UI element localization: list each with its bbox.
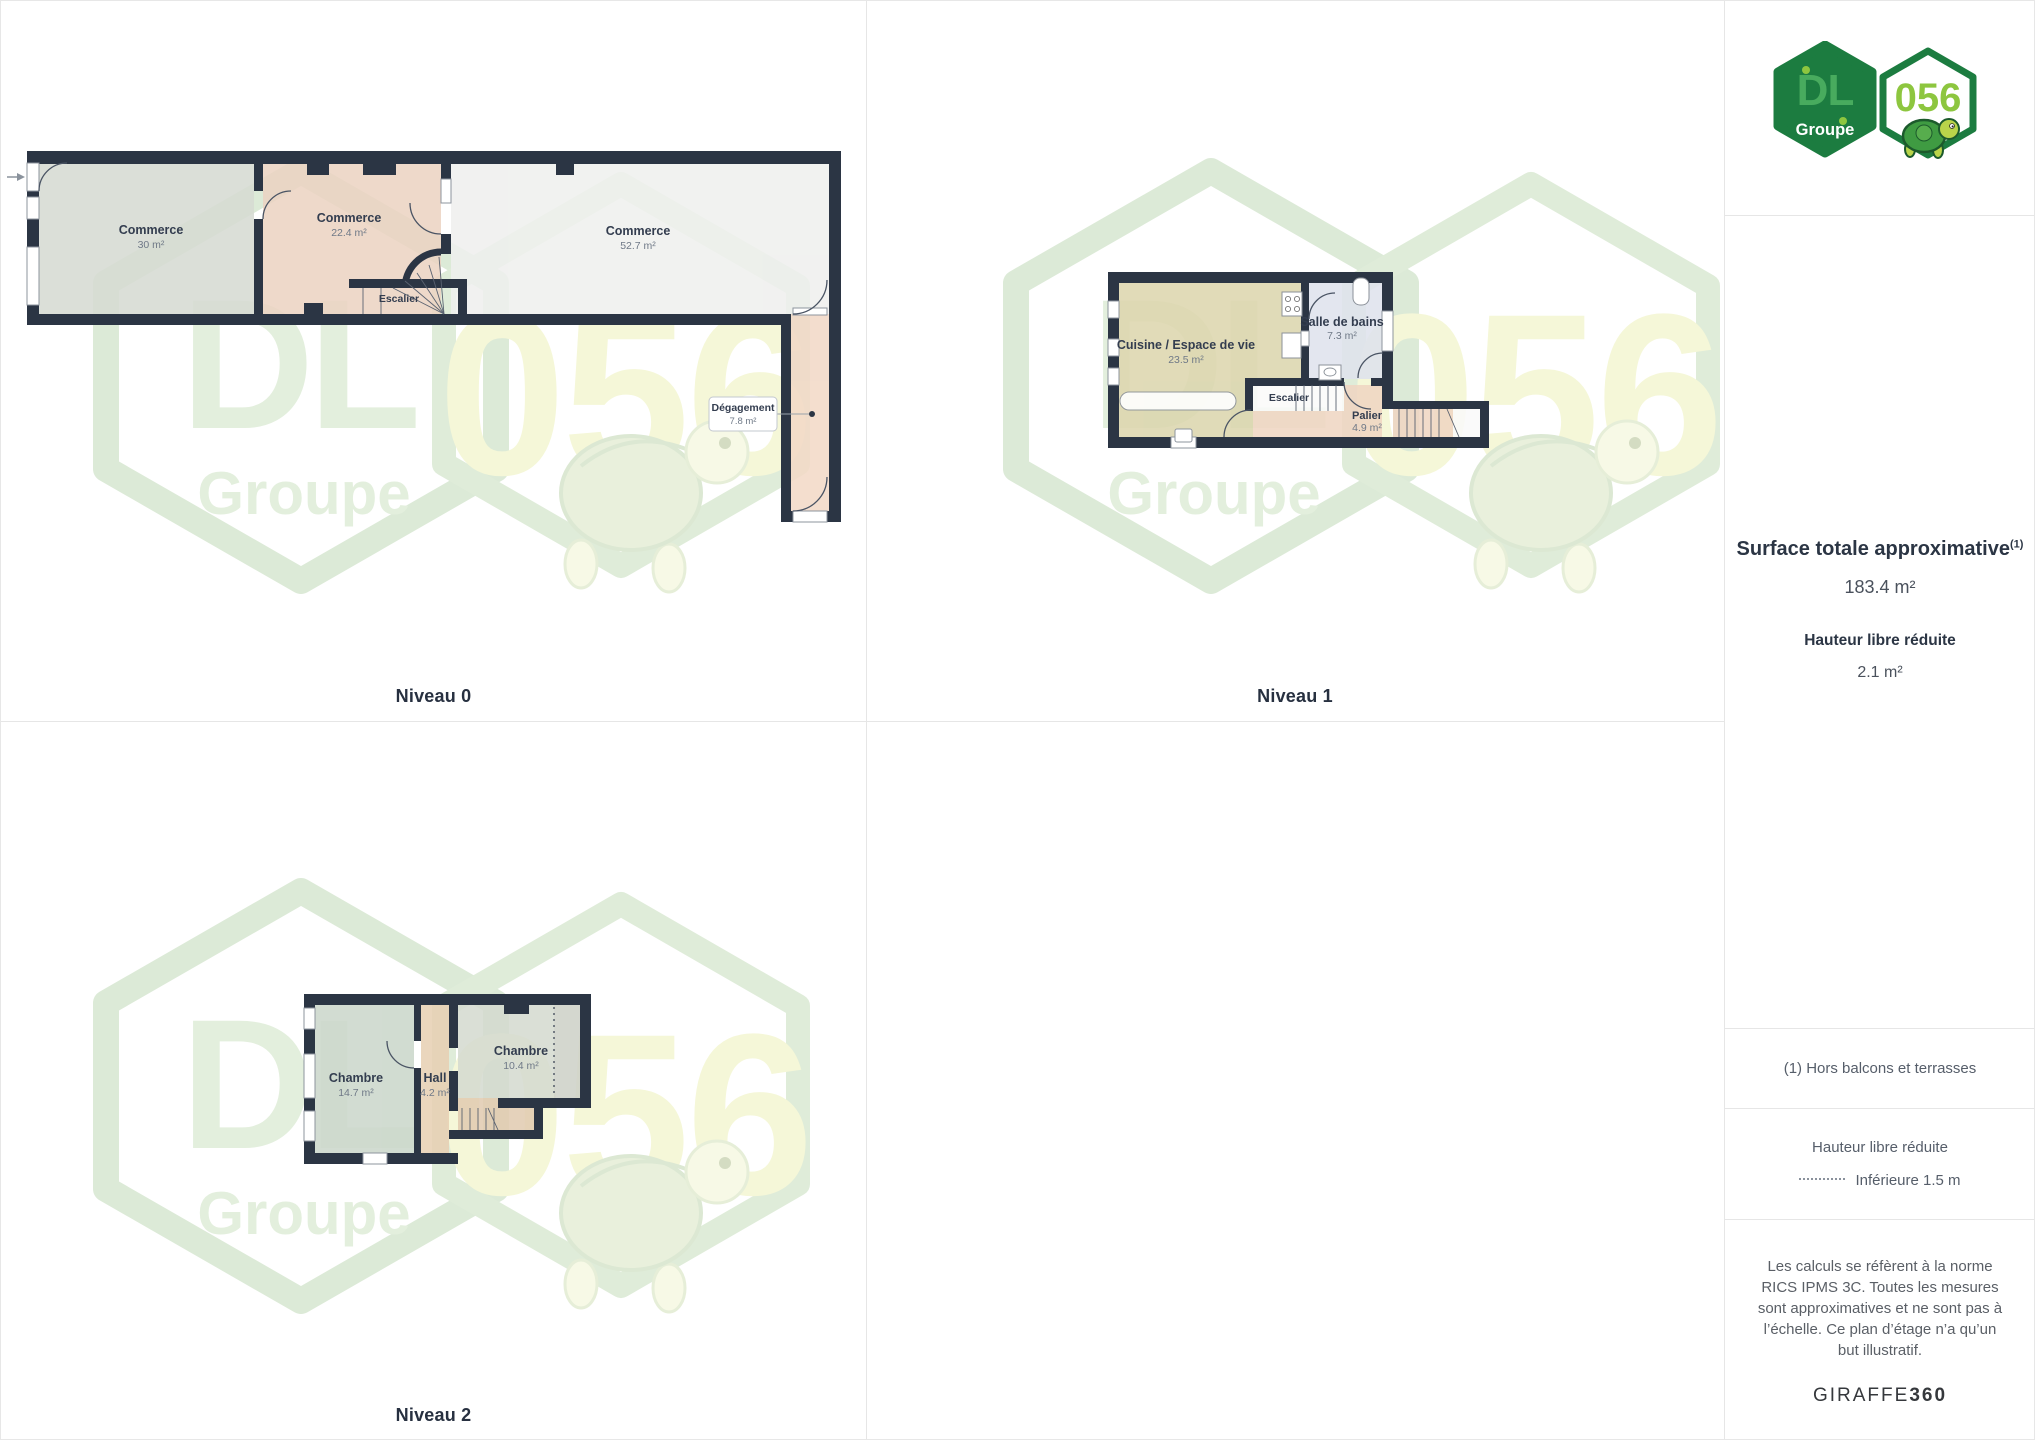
reduced-height-value: 2.1 m² bbox=[1725, 664, 2035, 682]
legend-title: Hauteur libre réduite bbox=[1725, 1139, 2035, 1156]
legend-item-label: Inférieure 1.5 m bbox=[1855, 1172, 1960, 1189]
room-label: Dégagement bbox=[711, 402, 775, 414]
room-label: Salle de bains bbox=[1300, 315, 1383, 329]
room-label: Escalier bbox=[379, 293, 419, 305]
disclaimer-section: Les calculs se réfèrent à la norme RICS … bbox=[1725, 1220, 2035, 1434]
kitchen-unit-icon bbox=[1282, 333, 1301, 358]
room-area: 4.2 m² bbox=[420, 1087, 450, 1099]
room-area: 10.4 m² bbox=[503, 1060, 539, 1072]
room-area: 23.5 m² bbox=[1168, 354, 1204, 366]
room-area: 52.7 m² bbox=[620, 240, 656, 252]
kitchen-counter bbox=[1120, 392, 1236, 410]
surface-total-value: 183.4 m² bbox=[1725, 577, 2035, 598]
room-area: 7.3 m² bbox=[1327, 330, 1357, 342]
surface-total-label: Surface totale approximative(1) bbox=[1725, 538, 2035, 561]
bathroom-sink-icon bbox=[1319, 365, 1341, 380]
giraffe360-brand: GIRAFFE360 bbox=[1725, 1385, 2035, 1407]
room-commerce-52 bbox=[451, 163, 830, 314]
surface-summary-section: Surface totale approximative(1) 183.4 m²… bbox=[1725, 216, 2035, 1029]
disclaimer-text: Les calculs se réfèrent à la norme RICS … bbox=[1754, 1256, 2006, 1361]
room-label: Chambre bbox=[329, 1071, 383, 1085]
agency-logo: DL Groupe 056 bbox=[1770, 41, 1990, 176]
room-label: Cuisine / Espace de vie bbox=[1117, 338, 1255, 352]
logo-turtle-icon bbox=[1903, 119, 1959, 158]
room-area: 14.7 m² bbox=[338, 1087, 374, 1099]
stove-icon bbox=[1282, 292, 1302, 316]
footnote-section: (1) Hors balcons et terrasses bbox=[1725, 1029, 2035, 1109]
room-label: Commerce bbox=[317, 211, 382, 225]
reduced-height-zone bbox=[554, 1005, 580, 1098]
room-label: Escalier bbox=[1269, 392, 1309, 404]
room-label: Commerce bbox=[119, 223, 184, 237]
logo-groupe-text: Groupe bbox=[1796, 121, 1855, 139]
room-label: Hall bbox=[424, 1071, 447, 1085]
logo-code-text: 056 bbox=[1895, 76, 1962, 120]
bathtub-icon bbox=[1353, 278, 1369, 305]
entry-arrow-head-icon bbox=[17, 173, 25, 181]
room-area: 22.4 m² bbox=[331, 227, 367, 239]
room-area: 7.8 m² bbox=[730, 416, 757, 427]
floor-title-niveau-2: Niveau 2 bbox=[1, 1405, 866, 1426]
footnote-text: (1) Hors balcons et terrasses bbox=[1784, 1060, 1977, 1077]
reduced-height-label: Hauteur libre réduite bbox=[1725, 632, 2035, 650]
agency-logo-section: DL Groupe 056 bbox=[1725, 1, 2035, 216]
dotted-line-icon bbox=[1799, 1176, 1845, 1180]
room-label: Chambre bbox=[494, 1044, 548, 1058]
legend-section: Hauteur libre réduite Inférieure 1.5 m bbox=[1725, 1109, 2035, 1220]
room-area: 4.9 m² bbox=[1352, 422, 1382, 434]
room-label: Palier bbox=[1352, 410, 1383, 422]
floor-title-niveau-1: Niveau 1 bbox=[866, 686, 1724, 707]
room-area: 30 m² bbox=[138, 239, 165, 251]
room-label: Commerce bbox=[606, 224, 671, 238]
info-sidebar: DL Groupe 056 Surface totale approxima bbox=[1724, 1, 2035, 1440]
floor-plan-page: DL Groupe 056 bbox=[0, 0, 2035, 1440]
footnote-ref: (1) bbox=[2010, 538, 2023, 550]
floor-title-niveau-0: Niveau 0 bbox=[1, 686, 866, 707]
